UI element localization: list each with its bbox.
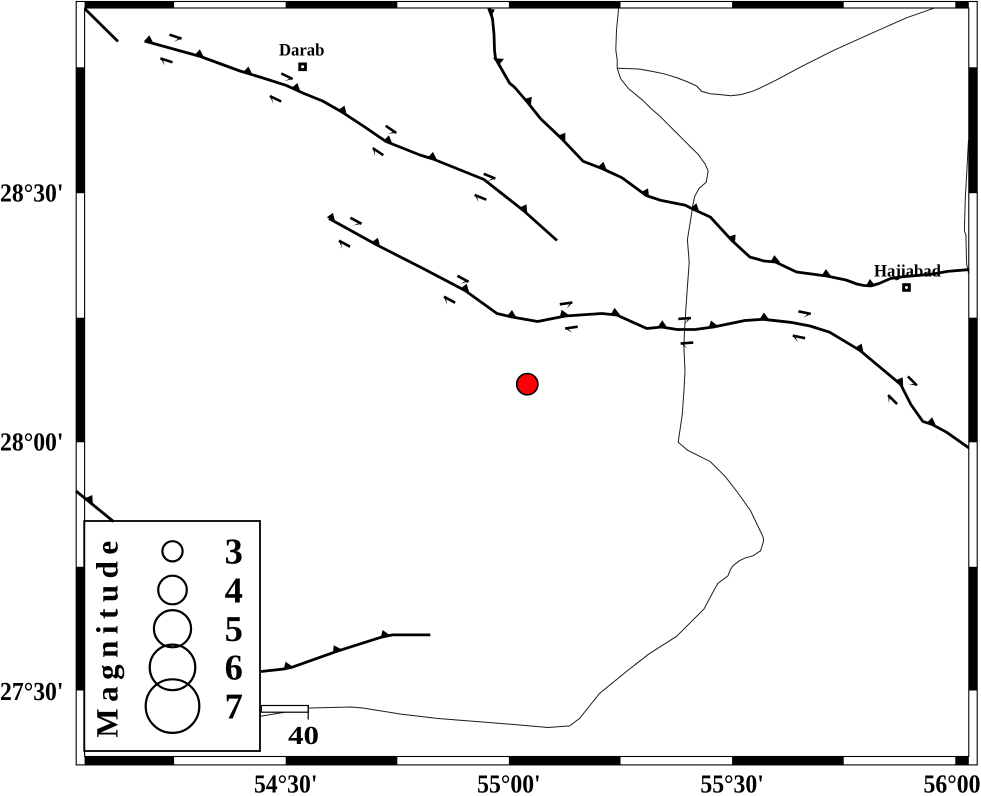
svg-text:28°30': 28°30' xyxy=(0,179,64,208)
svg-text:28°00': 28°00' xyxy=(0,428,64,457)
svg-text:6: 6 xyxy=(225,647,243,688)
svg-text:55°00': 55°00' xyxy=(477,770,541,796)
svg-text:40: 40 xyxy=(288,721,319,750)
svg-text:56°00': 56°00' xyxy=(924,770,981,796)
svg-text:Magnitude: Magnitude xyxy=(90,534,125,737)
svg-text:54°30': 54°30' xyxy=(254,770,318,796)
svg-text:Hajiabad: Hajiabad xyxy=(874,261,941,281)
svg-text:5: 5 xyxy=(225,608,243,649)
svg-text:4: 4 xyxy=(225,569,243,610)
svg-text:27°30': 27°30' xyxy=(0,677,64,706)
svg-text:Darab: Darab xyxy=(279,40,325,60)
svg-text:7: 7 xyxy=(225,685,243,726)
svg-text:55°30': 55°30' xyxy=(700,770,764,796)
svg-text:3: 3 xyxy=(225,531,243,572)
